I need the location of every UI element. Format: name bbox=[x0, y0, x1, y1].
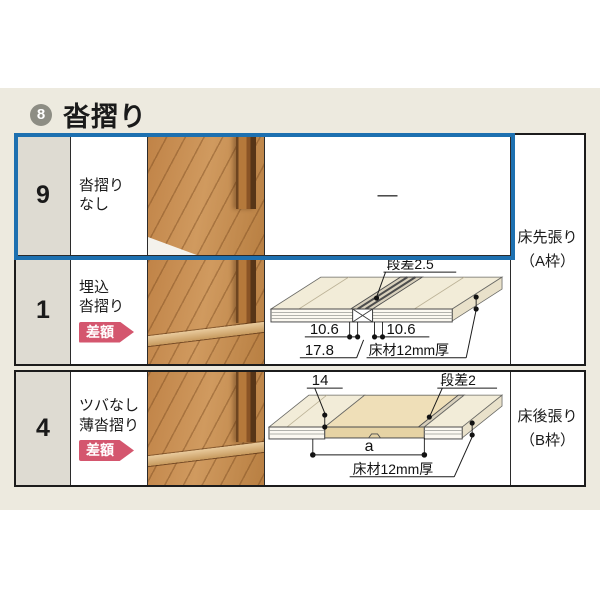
table-b-side-label: 床後張り （B枠） bbox=[511, 372, 584, 485]
door-frame bbox=[236, 135, 256, 209]
no-diagram-dash: — bbox=[378, 184, 398, 207]
side-label-a-line2: （A枠） bbox=[520, 250, 575, 273]
door-frame bbox=[236, 256, 256, 323]
section-number-badge: 8 bbox=[30, 104, 52, 126]
row9-photo bbox=[148, 135, 265, 256]
label-material-row4: 床材12mm厚 bbox=[353, 460, 434, 476]
side-label-b-line2: （B枠） bbox=[520, 429, 575, 452]
row1-name-line1: 埋込 bbox=[79, 278, 143, 298]
row4-photo bbox=[148, 372, 265, 485]
row1-number: 1 bbox=[16, 256, 71, 364]
row9-number: 9 bbox=[16, 135, 71, 256]
label-step-2: 段差2 bbox=[440, 373, 476, 388]
label-dim-right: 10.6 bbox=[387, 321, 416, 338]
wood-floor-photo bbox=[148, 372, 264, 485]
side-label-b-line1: 床後張り bbox=[517, 405, 577, 428]
wood-floor-photo bbox=[148, 256, 264, 364]
section-header: 8 沓摺り bbox=[30, 95, 147, 134]
wood-floor-photo bbox=[148, 135, 264, 255]
section-title: 沓摺り bbox=[63, 95, 147, 134]
catalog-page: 8 沓摺り 9 沓摺り なし — 床先張り （A枠） 1 埋込 沓摺り bbox=[0, 0, 600, 600]
door-frame bbox=[236, 372, 256, 442]
table-a: 9 沓摺り なし — 床先張り （A枠） 1 埋込 沓摺り 差額 bbox=[14, 133, 586, 366]
row1-price-diff-badge: 差額 bbox=[79, 322, 134, 343]
row4-number: 4 bbox=[16, 372, 71, 485]
row1-diagram-cell: 段差2.5 10.6 10.6 17.8 床材12mm厚 bbox=[265, 256, 511, 364]
embedded-sill-diagram: 段差2.5 10.6 10.6 17.8 床材12mm厚 bbox=[265, 257, 510, 363]
label-dim-left: 10.6 bbox=[310, 321, 339, 338]
row9-diagram-cell: — bbox=[265, 135, 511, 256]
label-dim-total: 17.8 bbox=[305, 342, 334, 359]
row9-name: 沓摺り なし bbox=[71, 135, 148, 256]
table-a-side-label: 床先張り （A枠） bbox=[511, 135, 584, 364]
row1-photo bbox=[148, 256, 265, 364]
row4-name: ツバなし 薄沓摺り 差額 bbox=[71, 372, 148, 485]
row9-name-line2: なし bbox=[79, 195, 143, 215]
row4-diagram-cell: 14 段差2 a 床材12mm厚 bbox=[265, 372, 511, 485]
side-label-a-line1: 床先張り bbox=[517, 226, 577, 249]
label-span-a: a bbox=[365, 437, 374, 454]
row1-name-line2: 沓摺り bbox=[79, 297, 143, 317]
row9-name-line1: 沓摺り bbox=[79, 176, 143, 196]
label-material-row1: 床材12mm厚 bbox=[369, 342, 450, 358]
row4-name-line2: 薄沓摺り bbox=[79, 416, 143, 436]
table-b: 4 ツバなし 薄沓摺り 差額 bbox=[14, 370, 586, 487]
row4-name-line1: ツバなし bbox=[79, 396, 143, 416]
label-step-2-5: 段差2.5 bbox=[387, 257, 434, 272]
row4-price-diff-badge: 差額 bbox=[79, 440, 134, 461]
row1-name: 埋込 沓摺り 差額 bbox=[71, 256, 148, 364]
label-thickness-14: 14 bbox=[312, 373, 329, 389]
thin-sill-diagram: 14 段差2 a 床材12mm厚 bbox=[265, 373, 510, 485]
